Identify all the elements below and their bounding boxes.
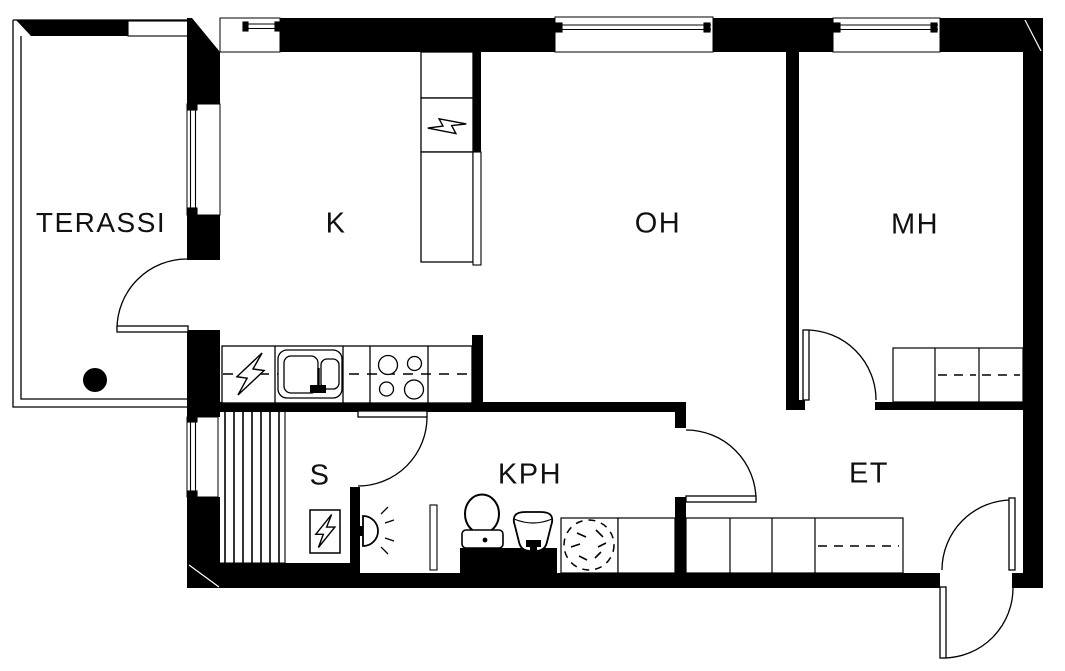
- hall-wardrobes: [686, 518, 903, 573]
- kitchen-sink: [278, 350, 342, 398]
- window-sauna: [187, 417, 218, 497]
- bedroom-door: [803, 330, 876, 400]
- shower-icon: [357, 507, 394, 554]
- washbasin: [514, 512, 553, 553]
- room-label-kitchen: K: [326, 208, 347, 241]
- bathroom-cabinet: [618, 518, 675, 573]
- terrace-floor-drain: [83, 368, 107, 392]
- room-label-sauna: S: [310, 460, 331, 493]
- tall-cabinets: [421, 52, 481, 265]
- walls: [187, 18, 1043, 588]
- wall-miter-lines: [189, 20, 1041, 587]
- window-kitchen: [220, 18, 280, 52]
- toilet-pedestal: [460, 548, 557, 573]
- terrace-rail-gap: [128, 21, 190, 36]
- floor-plan: TERASSI K OH MH S KPH ET: [0, 0, 1065, 671]
- terrace-door: [117, 259, 188, 332]
- sauna-door: [358, 411, 427, 486]
- floor-plan-drawing: [0, 0, 1065, 671]
- bathroom-fixtures: [357, 495, 675, 574]
- windows: [187, 17, 940, 497]
- window-bedroom: [833, 18, 940, 52]
- shower-partition: [430, 505, 437, 570]
- sauna-benches: [220, 412, 285, 563]
- terrace-wall-bar: [16, 20, 128, 36]
- room-label-bathroom: KPH: [498, 459, 562, 492]
- room-label-hall: ET: [849, 458, 889, 491]
- kitchen-fixtures: [222, 52, 481, 403]
- washing-machine: [561, 518, 618, 573]
- entrance-door: [940, 498, 1015, 658]
- room-label-bedroom: MH: [891, 209, 939, 242]
- room-label-terassi: TERASSI: [36, 207, 166, 239]
- bedroom-bed: [893, 348, 1023, 402]
- window-living-room: [555, 17, 713, 52]
- room-label-living-room: OH: [635, 208, 682, 241]
- toilet: [462, 495, 503, 549]
- window-kitchen-left: [187, 104, 220, 215]
- bathroom-door: [686, 430, 756, 502]
